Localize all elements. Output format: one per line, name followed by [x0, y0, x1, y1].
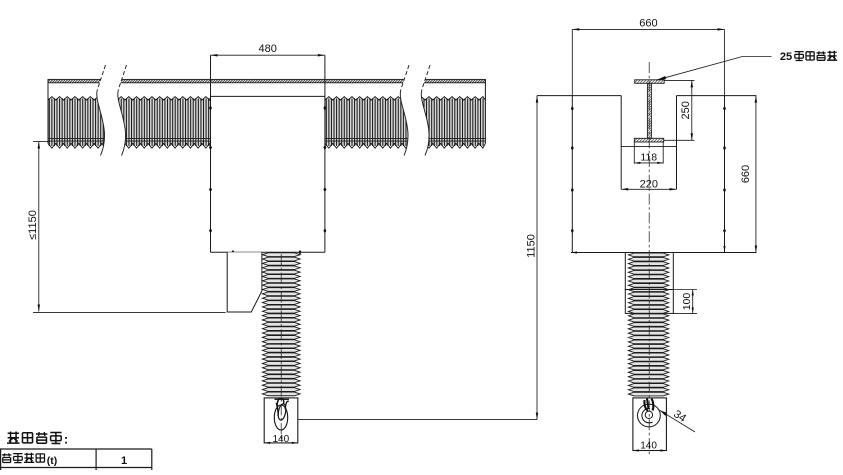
svg-text:250: 250 [680, 101, 692, 119]
svg-text:1150: 1150 [525, 234, 537, 258]
svg-text:100: 100 [681, 293, 693, 311]
svg-text::: : [64, 432, 68, 447]
svg-text:660: 660 [740, 165, 752, 183]
svg-text:480: 480 [259, 43, 277, 55]
svg-text:1: 1 [121, 455, 127, 467]
svg-text:220: 220 [640, 179, 658, 191]
svg-text:140: 140 [272, 434, 289, 445]
svg-text:≤1150: ≤1150 [27, 210, 39, 240]
svg-text:118: 118 [640, 152, 657, 164]
svg-text:25: 25 [780, 51, 792, 63]
svg-text:(t): (t) [47, 455, 58, 467]
svg-text:660: 660 [639, 18, 657, 30]
svg-text:140: 140 [640, 441, 657, 452]
